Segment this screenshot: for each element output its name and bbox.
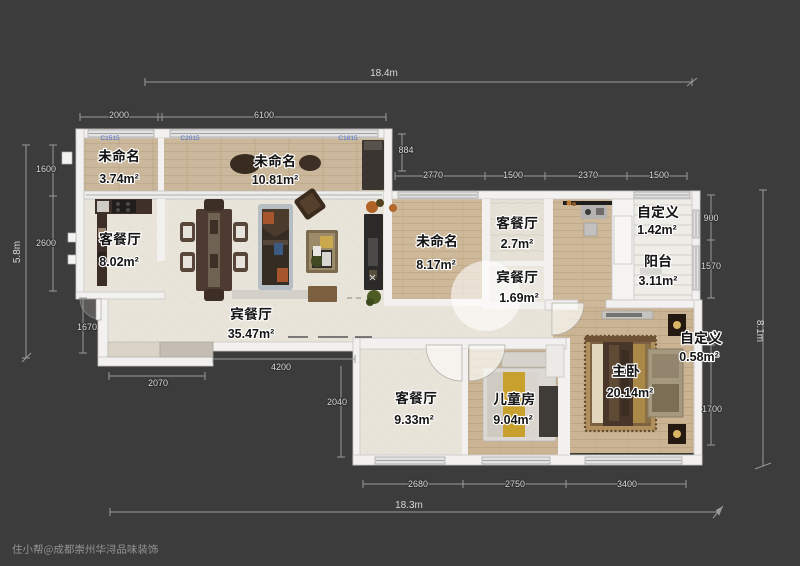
svg-text:1.69m²: 1.69m² (499, 291, 539, 305)
svg-text:1500: 1500 (649, 170, 669, 180)
svg-text:1570: 1570 (701, 261, 721, 271)
svg-text:18.4m: 18.4m (370, 68, 398, 79)
svg-text:1500: 1500 (503, 170, 523, 180)
svg-text:2040: 2040 (327, 397, 347, 407)
svg-text:1670: 1670 (77, 322, 97, 332)
svg-text:8.17m²: 8.17m² (416, 258, 456, 272)
svg-text:C1515: C1515 (100, 135, 120, 142)
svg-text:C1815: C1815 (338, 135, 358, 142)
svg-text:35.47m²: 35.47m² (228, 327, 275, 341)
svg-text:C2015: C2015 (180, 135, 200, 142)
svg-text:4200: 4200 (271, 362, 291, 372)
svg-text:884: 884 (398, 145, 413, 155)
svg-text:3400: 3400 (617, 479, 637, 489)
svg-text:1.42m²: 1.42m² (637, 223, 677, 237)
svg-text:8.1m: 8.1m (754, 320, 765, 342)
svg-text:2750: 2750 (505, 479, 525, 489)
svg-text:5.8m: 5.8m (12, 241, 23, 263)
svg-text:6100: 6100 (254, 110, 274, 120)
svg-text:2000: 2000 (109, 110, 129, 120)
svg-text:2.7m²: 2.7m² (501, 237, 534, 251)
svg-text:20.14m²: 20.14m² (607, 386, 654, 400)
svg-text:3.11m²: 3.11m² (639, 274, 678, 288)
svg-text:8.02m²: 8.02m² (99, 255, 139, 269)
svg-text:2600: 2600 (36, 238, 56, 248)
svg-text:1600: 1600 (36, 164, 56, 174)
svg-text:10.81m²: 10.81m² (252, 173, 299, 187)
svg-text:2770: 2770 (423, 170, 443, 180)
svg-text:0.58m²: 0.58m² (679, 350, 719, 364)
svg-text:3.74m²: 3.74m² (99, 172, 139, 186)
svg-text:9.33m²: 9.33m² (394, 413, 434, 427)
svg-text:2070: 2070 (148, 378, 168, 388)
svg-text:900: 900 (703, 213, 718, 223)
svg-text:18.3m: 18.3m (395, 500, 423, 511)
svg-text:2370: 2370 (578, 170, 598, 180)
svg-text:1700: 1700 (702, 404, 722, 414)
svg-text:9.04m²: 9.04m² (493, 413, 533, 427)
svg-text:2680: 2680 (408, 479, 428, 489)
